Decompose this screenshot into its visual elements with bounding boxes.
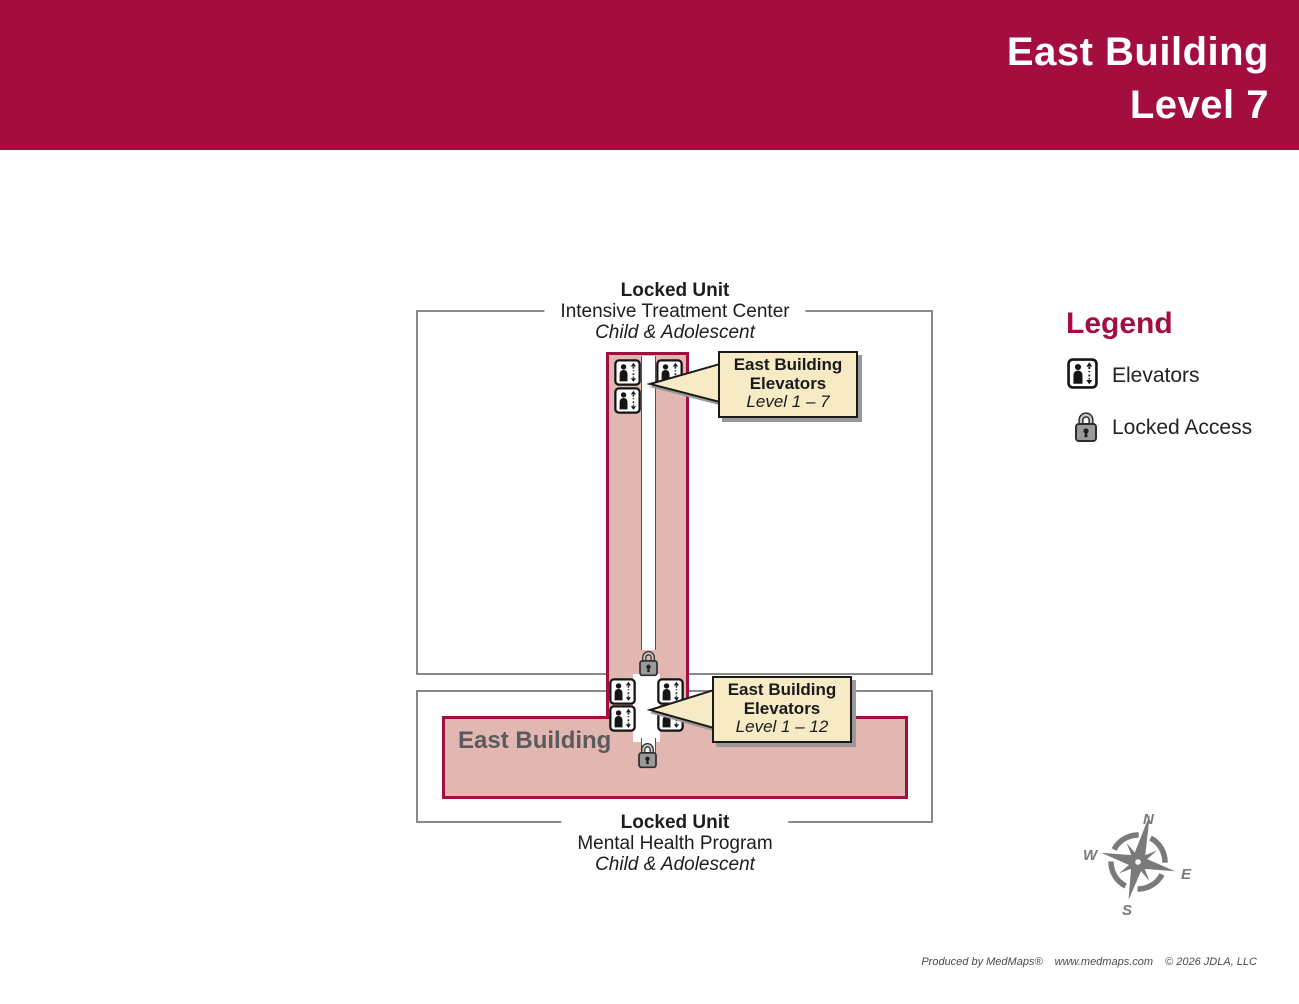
page-title-building: East Building bbox=[1007, 26, 1269, 79]
compass-east-label: E bbox=[1181, 866, 1192, 883]
callout-line3: Level 1 – 12 bbox=[716, 718, 848, 737]
legend-title: Legend bbox=[1066, 307, 1173, 341]
page-title: East Building Level 7 bbox=[1007, 26, 1269, 132]
callout-line2: Elevators bbox=[716, 700, 848, 719]
callout-pointer bbox=[642, 356, 720, 406]
elevator-icon bbox=[614, 387, 641, 414]
callout-line1: East Building bbox=[716, 681, 848, 700]
top-unit-subtitle: Intensive Treatment Center bbox=[560, 301, 789, 322]
callout-line1: East Building bbox=[722, 356, 854, 375]
footer-copyright: © 2026 JDLA, LLC bbox=[1165, 956, 1257, 968]
compass-north-label: N bbox=[1143, 811, 1155, 828]
lock-icon bbox=[638, 649, 659, 677]
elevator-icon bbox=[1067, 357, 1098, 390]
bottom-unit-population: Child & Adolescent bbox=[577, 854, 772, 875]
callout-upper-elevators: East Building Elevators Level 1 – 7 bbox=[718, 351, 858, 418]
page-title-level: Level 7 bbox=[1007, 79, 1269, 132]
header-banner: East Building Level 7 bbox=[0, 0, 1299, 150]
callout-line3: Level 1 – 7 bbox=[722, 393, 854, 412]
compass-rose-icon: N W E S bbox=[1075, 800, 1205, 930]
lock-icon bbox=[637, 741, 658, 769]
top-unit-population: Child & Adolescent bbox=[560, 322, 789, 343]
compass-west-label: W bbox=[1083, 847, 1099, 864]
callout-line2: Elevators bbox=[722, 375, 854, 394]
compass-south-label: S bbox=[1122, 902, 1132, 919]
bottom-unit-title: Locked Unit bbox=[577, 812, 772, 833]
callout-lower-elevators: East Building Elevators Level 1 – 12 bbox=[712, 676, 852, 743]
top-unit-label: Locked Unit Intensive Treatment Center C… bbox=[544, 280, 805, 343]
callout-pointer bbox=[642, 684, 714, 732]
lock-icon bbox=[1074, 410, 1098, 443]
elevator-icon bbox=[609, 678, 636, 705]
elevator-icon bbox=[609, 705, 636, 732]
bottom-unit-subtitle: Mental Health Program bbox=[577, 833, 772, 854]
legend-label-elevators: Elevators bbox=[1112, 364, 1200, 388]
elevator-icon bbox=[614, 359, 641, 386]
legend-label-locked-access: Locked Access bbox=[1112, 416, 1252, 440]
footer-website: www.medmaps.com bbox=[1055, 956, 1153, 968]
footer-credits: Produced by MedMaps® www.medmaps.com © 2… bbox=[921, 956, 1257, 968]
bottom-unit-label: Locked Unit Mental Health Program Child … bbox=[561, 812, 788, 875]
top-unit-title: Locked Unit bbox=[560, 280, 789, 301]
footer-produced-by: Produced by MedMaps® bbox=[921, 956, 1042, 968]
